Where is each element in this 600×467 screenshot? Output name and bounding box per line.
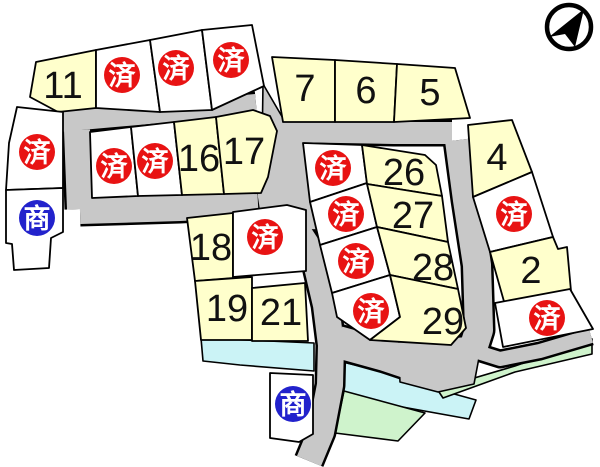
sold-badge: 済: [213, 42, 249, 78]
commercial-badge-label: 商: [280, 390, 307, 421]
sold-badge: 済: [19, 134, 55, 170]
lot-18-label: 18: [190, 227, 232, 269]
sold-badge: 済: [353, 293, 389, 329]
sold-badge-label: 済: [24, 137, 52, 169]
sold-badge-label: 済: [333, 199, 361, 231]
sold-badge: 済: [158, 50, 194, 86]
sold-badge: 済: [104, 57, 140, 93]
commercial-badge-label: 商: [24, 204, 51, 235]
sold-badge-label: 済: [358, 296, 386, 328]
lot-2-label: 2: [520, 250, 541, 292]
sold-badge: 済: [315, 150, 351, 186]
sold-badge-label: 済: [343, 246, 371, 278]
sold-badge: 済: [496, 196, 532, 232]
sold-badge: 済: [328, 196, 364, 232]
sold-badge-label: 済: [501, 199, 529, 231]
lot-21-label: 21: [260, 292, 302, 334]
lot-29-label: 29: [422, 301, 464, 343]
commercial-badge: 商: [19, 200, 55, 236]
lot-7-label: 7: [294, 68, 315, 110]
lot-27-label: 27: [392, 195, 434, 237]
lot-26-label: 26: [383, 152, 425, 194]
lot-19-label: 19: [206, 288, 248, 330]
lot-28-label: 28: [412, 247, 454, 289]
commercial-badge: 商: [275, 386, 311, 422]
sold-badge-label: 済: [320, 153, 348, 185]
sold-badge-label: 済: [163, 53, 191, 85]
lot-11-label: 11: [43, 65, 82, 107]
sold-badge-label: 済: [109, 60, 137, 92]
sold-badge-label: 済: [142, 146, 170, 178]
lot-5-label: 5: [419, 72, 440, 114]
lot-16-label: 16: [178, 138, 220, 180]
sold-badge-label: 済: [252, 222, 280, 254]
sold-badge-label: 済: [101, 151, 129, 183]
lot-17-label: 17: [223, 131, 265, 173]
sold-badge: 済: [529, 300, 565, 336]
sold-badge-label: 済: [218, 45, 246, 77]
lot-4-label: 4: [486, 137, 507, 179]
sold-badge: 済: [247, 219, 283, 255]
sold-badge-label: 済: [534, 303, 562, 335]
sold-badge: 済: [338, 243, 374, 279]
lot-map: 11 7 6 5 16 17 4 26 27 28 29 18 19 21 2 …: [0, 0, 600, 467]
sold-badge: 済: [96, 148, 132, 184]
sold-badge: 済: [137, 143, 173, 179]
lot-6-label: 6: [355, 70, 376, 112]
